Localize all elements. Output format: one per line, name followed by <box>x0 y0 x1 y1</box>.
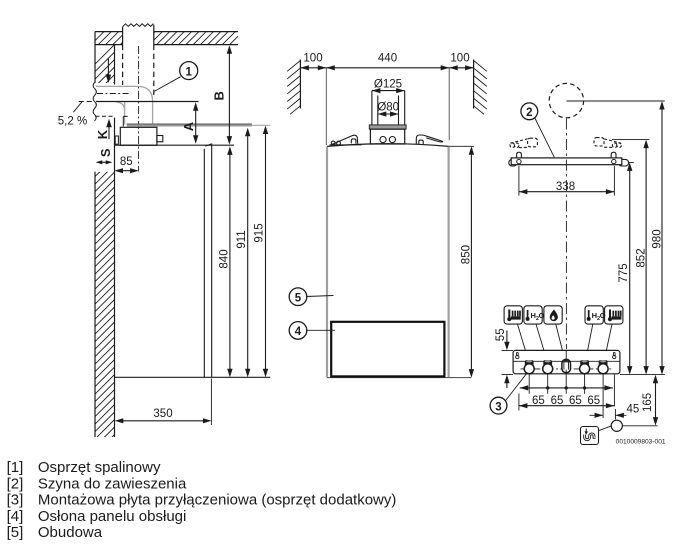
svg-text:A: A <box>181 121 196 131</box>
svg-text:775: 775 <box>618 263 630 282</box>
svg-text:100: 100 <box>303 53 322 65</box>
svg-text:2: 2 <box>526 107 532 119</box>
svg-text:Ø125: Ø125 <box>374 78 402 90</box>
svg-text:1: 1 <box>185 66 192 78</box>
svg-text:338: 338 <box>556 181 575 193</box>
svg-text:[5]: [5] <box>7 524 24 541</box>
svg-text:911: 911 <box>236 230 248 248</box>
svg-text:65: 65 <box>587 395 600 407</box>
svg-text:[1]: [1] <box>7 459 24 476</box>
svg-text:980: 980 <box>652 229 664 248</box>
svg-text:915: 915 <box>253 223 265 242</box>
svg-text:165: 165 <box>642 393 654 412</box>
svg-text:S: S <box>98 148 113 157</box>
svg-text:3: 3 <box>495 401 501 413</box>
svg-text:[4]: [4] <box>7 508 24 525</box>
svg-text:440: 440 <box>378 53 397 65</box>
svg-text:Osprzęt spalinowy: Osprzęt spalinowy <box>38 459 161 476</box>
svg-text:5: 5 <box>295 292 302 304</box>
svg-text:5,2 %: 5,2 % <box>58 115 87 127</box>
svg-text:B: B <box>212 91 227 100</box>
svg-text:65: 65 <box>532 395 545 407</box>
svg-text:850: 850 <box>461 245 473 264</box>
svg-text:[3]: [3] <box>7 492 24 509</box>
svg-text:45: 45 <box>627 404 640 416</box>
svg-text:65: 65 <box>569 395 582 407</box>
svg-text:Ø80: Ø80 <box>377 102 399 114</box>
svg-text:55: 55 <box>495 328 507 341</box>
svg-text:Szyna do zawieszenia: Szyna do zawieszenia <box>38 475 187 492</box>
svg-text:Osłona panelu obsługi: Osłona panelu obsługi <box>38 508 186 525</box>
svg-text:4: 4 <box>295 326 302 338</box>
svg-text:85: 85 <box>120 156 133 168</box>
svg-text:100: 100 <box>450 53 469 65</box>
svg-text:Montażowa płyta przyłączeniowa: Montażowa płyta przyłączeniowa (osprzęt … <box>38 492 397 509</box>
svg-text:65: 65 <box>551 395 564 407</box>
svg-text:350: 350 <box>153 408 172 420</box>
svg-text:852: 852 <box>636 248 648 267</box>
svg-text:[2]: [2] <box>7 475 24 492</box>
svg-text:Obudowa: Obudowa <box>38 524 103 541</box>
svg-text:0010009803-001: 0010009803-001 <box>616 438 666 445</box>
svg-text:K: K <box>95 129 110 139</box>
svg-text:840: 840 <box>218 249 230 268</box>
